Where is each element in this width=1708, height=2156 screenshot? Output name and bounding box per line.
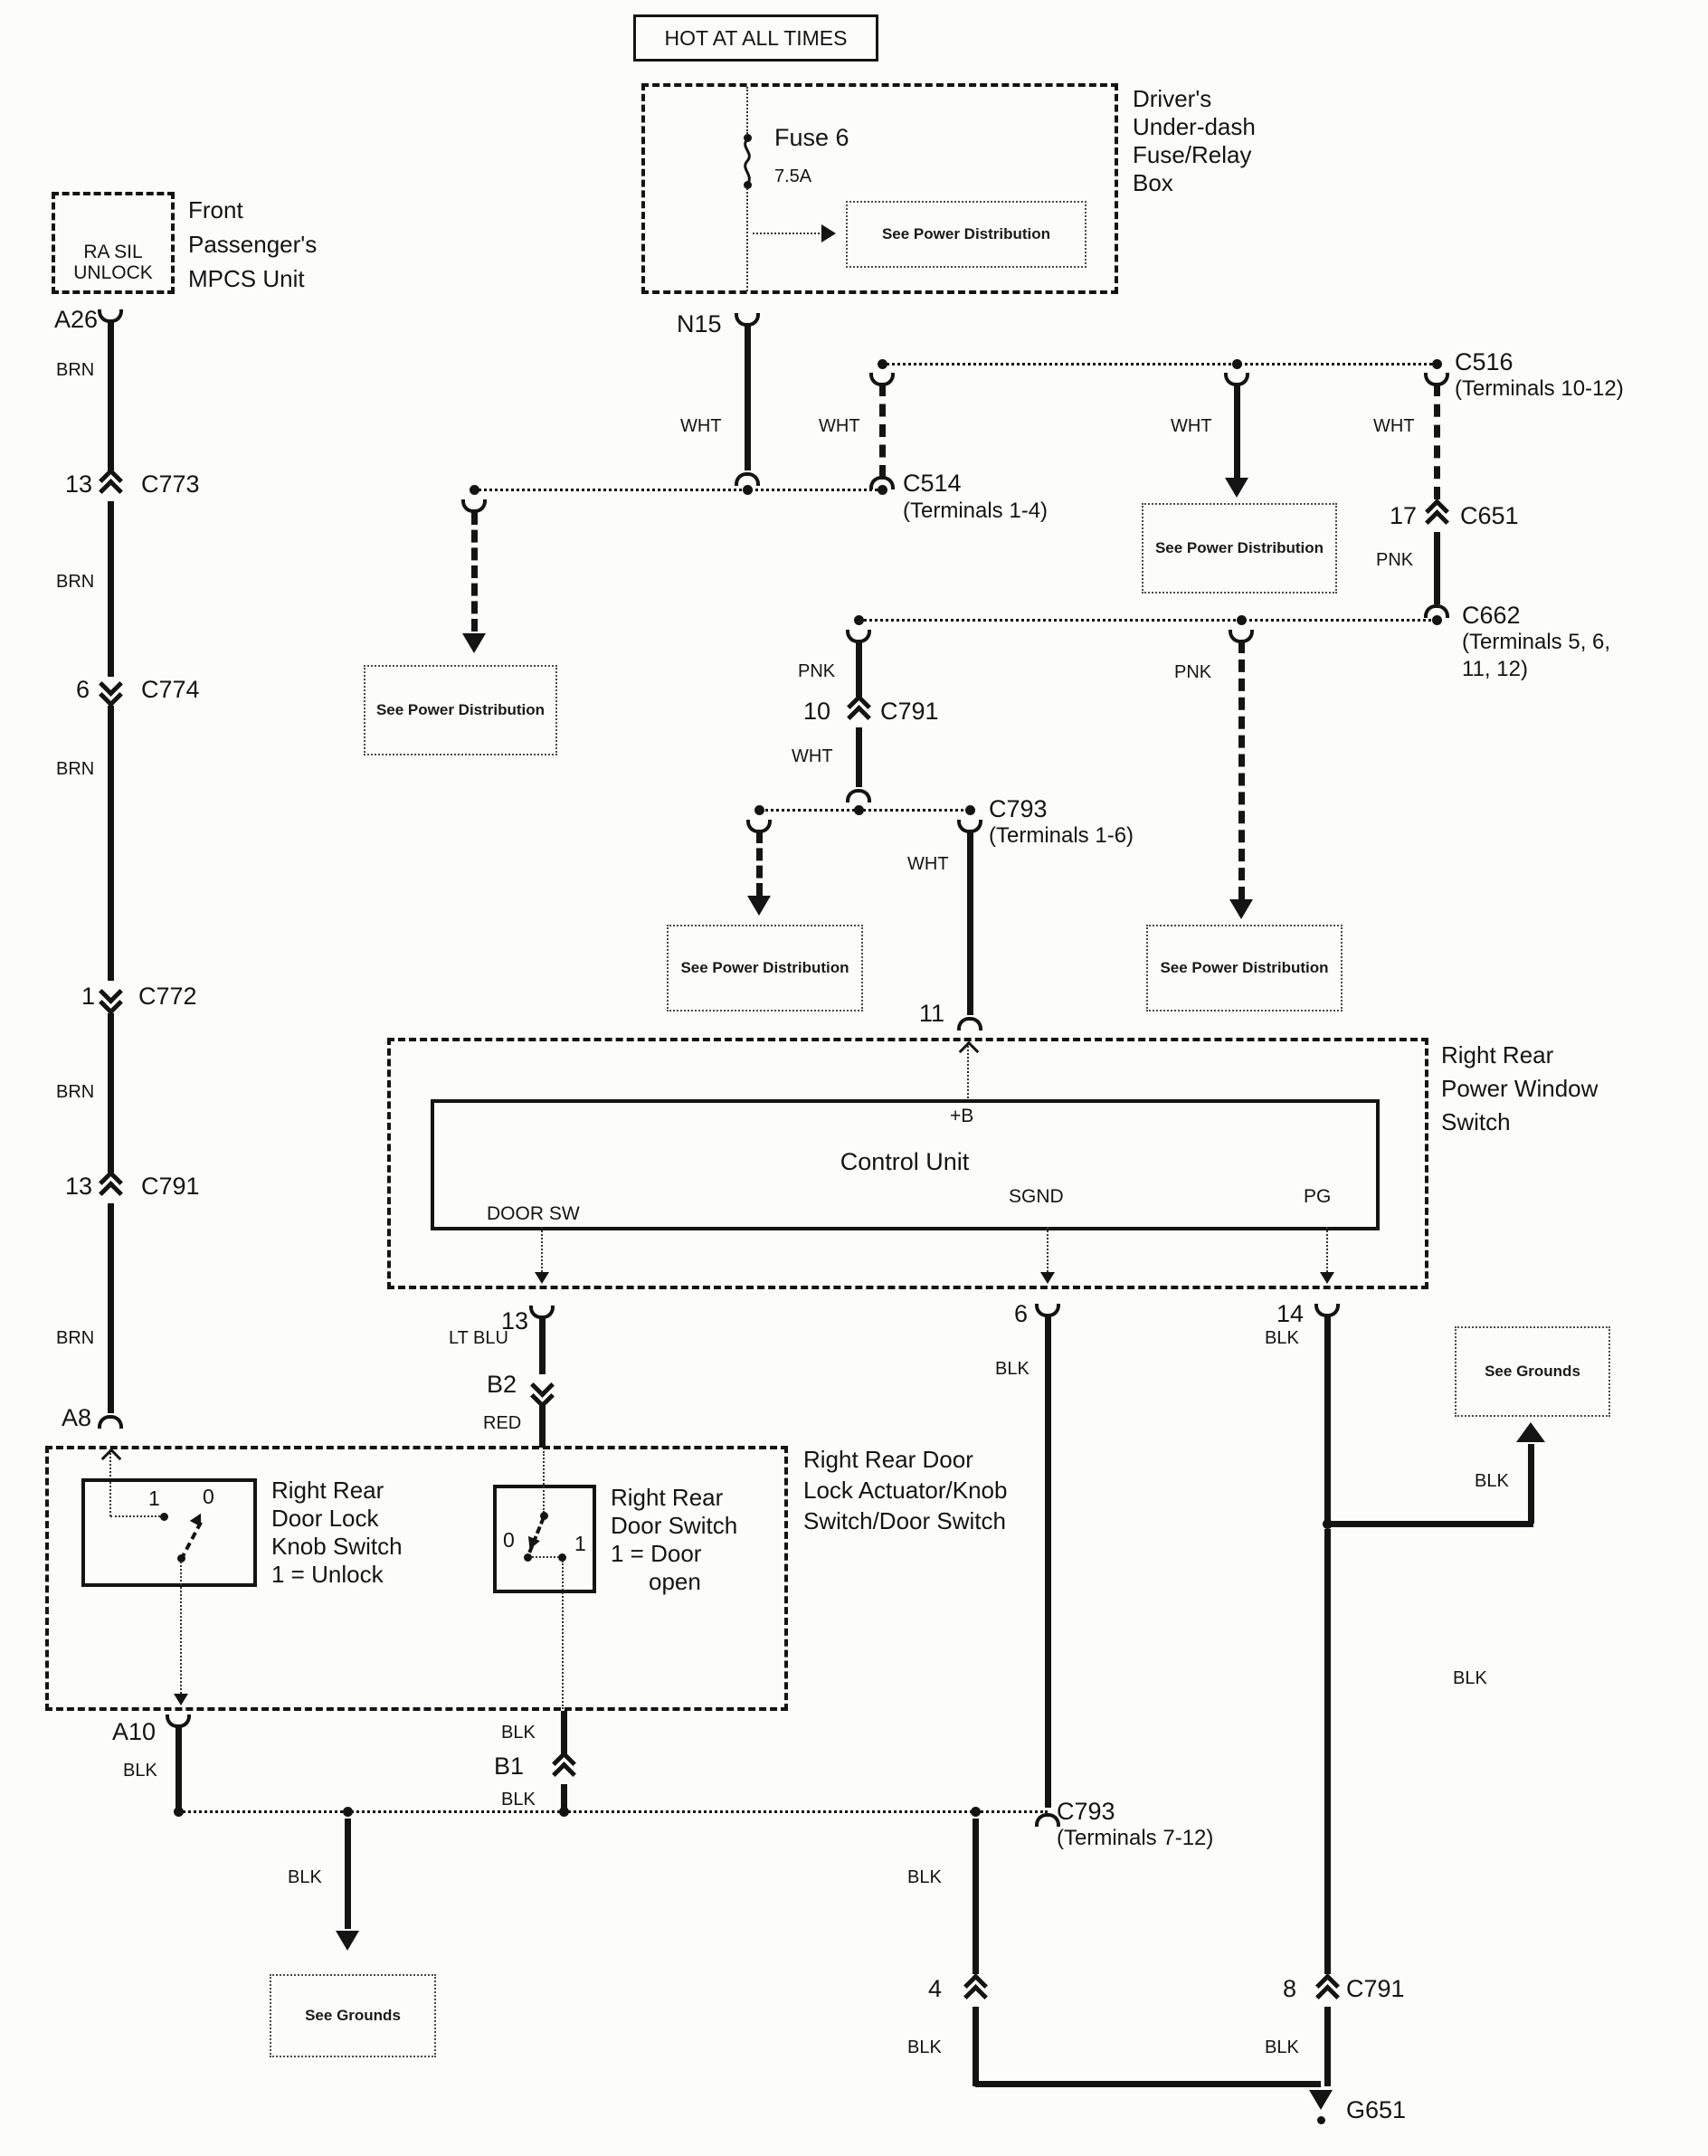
wire-color-pnk-c791: PNK (798, 661, 835, 681)
g651-label: G651 (1346, 2097, 1406, 2123)
knob-label-line4: 1 = Unlock (271, 1561, 403, 1589)
wire-blk-pg-1 (1324, 1315, 1331, 1521)
wire-color-blk-b1-up: BLK (501, 1723, 536, 1743)
knob-switch-box (81, 1478, 257, 1587)
wire-wht-c651 (1434, 384, 1440, 499)
fuse-squiggle-path (745, 139, 750, 185)
wire-color-blk-pin8: BLK (1265, 2037, 1299, 2057)
junction-dot (1232, 359, 1242, 369)
terminal-a26-label: A26 (54, 307, 98, 333)
junction-dot (1432, 615, 1442, 625)
connector-c774-icon (100, 675, 121, 704)
hot-at-all-times-label: HOT AT ALL TIMES (665, 27, 848, 49)
wire-blk-pg-2 (1324, 1529, 1331, 1974)
door-label-line3: 1 = Door (611, 1540, 737, 1568)
connector-c791-mid-icon (848, 697, 869, 726)
connector-fork-icon (98, 1415, 123, 1429)
bus-c793-lower (178, 1810, 1048, 1813)
connector-c772-label: C772 (138, 983, 197, 1010)
bus-c793-upper (759, 809, 970, 812)
wire-wht-pin11 (967, 831, 973, 1015)
terminal-a8-label: A8 (62, 1405, 91, 1431)
wire-brn-1 (108, 320, 114, 470)
wire-pnk-c651 (1434, 532, 1440, 604)
connector-c791-left-pin: 13 (65, 1173, 92, 1200)
mpcs-title-line2: Passenger's (188, 227, 317, 261)
junction-dot (174, 1807, 184, 1817)
sgnd-label: SGND (1009, 1186, 1064, 1207)
see-power-box-3: See Power Distribution (1146, 925, 1343, 1012)
connector-c651-icon (1426, 501, 1447, 530)
wire-color-blk-b1-dn: BLK (501, 1790, 536, 1809)
wire-blk-pin4-1 (973, 1819, 979, 1974)
wire-color-blk-a10: BLK (123, 1761, 157, 1781)
fuse-branch-lead (753, 233, 820, 234)
door-label-line2: Door Switch (611, 1512, 737, 1540)
connector-c773-pin: 13 (65, 471, 92, 498)
arrow-down-icon (1229, 899, 1253, 919)
wire-color-brn-1: BRN (56, 360, 94, 380)
door-switch-label: Right Rear Door Switch 1 = Door open (611, 1484, 737, 1596)
actuator-title-line3: Switch/Door Switch (803, 1505, 1007, 1536)
connector-c772-pin: 1 (81, 983, 95, 1010)
knob-pos-1-label: 1 (148, 1487, 160, 1509)
actuator-title-line2: Lock Actuator/Knob (803, 1475, 1007, 1505)
wire-brn-3 (108, 706, 114, 981)
see-grounds-label-1: See Grounds (1485, 1363, 1580, 1381)
see-power-label-4: See Power Distribution (680, 959, 849, 977)
wire-color-blk-pin4-up: BLK (907, 1867, 942, 1887)
door-actuator-title: Right Rear Door Lock Actuator/Knob Switc… (803, 1444, 1007, 1536)
wire-color-blk-gnd-center: BLK (288, 1867, 322, 1887)
see-power-label-2: See Power Distribution (1155, 539, 1324, 557)
wire-wht-c791 (856, 727, 862, 787)
see-power-box-fuse: See Power Distribution (846, 201, 1086, 268)
exit-lead-door-sw (541, 1227, 543, 1276)
connector-pin4-label: 4 (928, 1976, 942, 2002)
wire-blk-b1-1 (561, 1711, 567, 1755)
see-power-label-fuse: See Power Distribution (882, 225, 1050, 243)
fuse-icon (739, 139, 755, 185)
wire-brn-2 (108, 501, 114, 677)
actuator-title-line1: Right Rear Door (803, 1444, 1007, 1475)
connector-fork-icon (846, 789, 871, 803)
wire-pnk-c791 (856, 641, 862, 697)
arrow-down-icon (1040, 1272, 1055, 1284)
see-grounds-box-1: See Grounds (1455, 1326, 1610, 1417)
see-grounds-box-2: See Grounds (270, 1974, 436, 2057)
connector-c791-left-icon (100, 1173, 121, 1201)
junction-dot (470, 485, 479, 495)
see-power-label-3: See Power Distribution (1160, 959, 1328, 977)
plus-b-label: +B (950, 1106, 973, 1126)
terminal-6-label: 6 (1014, 1301, 1028, 1327)
connector-c793-lower-terminals: (Terminals 7-12) (1057, 1827, 1213, 1850)
control-unit-label: Control Unit (830, 1149, 979, 1175)
power-window-switch-title: Right Rear Power Window Switch (1441, 1039, 1598, 1139)
connector-c774-label: C774 (141, 677, 200, 703)
wire-ltblu (539, 1316, 546, 1374)
door-label-line4: open (611, 1568, 737, 1596)
door-contact-link (532, 1556, 559, 1558)
see-power-box-4: See Power Distribution (667, 925, 863, 1012)
connector-b1-icon (553, 1753, 574, 1782)
pws-title-line1: Right Rear (1441, 1039, 1598, 1072)
wire-color-blk-gnd-branch: BLK (1475, 1471, 1509, 1491)
terminal-a10-label: A10 (112, 1719, 156, 1745)
pg-label: PG (1304, 1186, 1331, 1207)
pws-title-line2: Power Window (1441, 1072, 1598, 1106)
see-power-label-1: See Power Distribution (376, 701, 545, 719)
wire-blk-pin4-2 (973, 2007, 979, 2086)
wire-red (539, 1406, 546, 1448)
wire-color-wht-riser: WHT (819, 416, 860, 436)
wire-brn-5 (108, 1203, 114, 1413)
mpcs-signal-line2: UNLOCK (73, 262, 153, 283)
ground-arrow-icon (336, 1931, 359, 1951)
knob-label-line3: Knob Switch (271, 1533, 403, 1561)
wire-blk-a10 (176, 1725, 182, 1809)
arrow-down-icon (535, 1272, 549, 1284)
door-contact-0-dot (524, 1553, 532, 1562)
fuse-lead-top (746, 87, 748, 134)
fuse-name-label: Fuse 6 (774, 125, 849, 151)
wire-wht-riser (879, 384, 886, 478)
door-entry-lead (543, 1451, 545, 1513)
junction-dot (878, 359, 887, 369)
mpcs-title-line1: Front (188, 193, 317, 227)
door-pos-1-label: 1 (574, 1533, 586, 1554)
junction-dot (965, 805, 975, 815)
wiring-diagram-page: HOT AT ALL TIMES Driver's Under-dash Fus… (0, 0, 1708, 2156)
terminal-n15-label: N15 (677, 311, 722, 337)
door-exit-lead (562, 1561, 564, 1709)
door-pos-0-label: 0 (503, 1529, 515, 1551)
junction-dot (343, 1807, 353, 1817)
terminal-11-label: 11 (919, 1001, 944, 1027)
knob-exit-lead (180, 1562, 182, 1694)
connector-c516-terminals: (Terminals 10-12) (1455, 377, 1624, 401)
junction-dot (854, 615, 864, 625)
bus-c516 (882, 363, 1437, 366)
see-power-box-2: See Power Distribution (1142, 503, 1337, 594)
mpcs-unit-box: RA SIL UNLOCK (52, 192, 175, 294)
wire-color-wht-c791: WHT (792, 746, 833, 766)
wire-color-wht-drop: WHT (1171, 416, 1212, 436)
fuse-relay-box-title: Driver's Under-dash Fuse/Relay Box (1133, 85, 1256, 197)
g651-ground-icon (1309, 2090, 1333, 2110)
connector-c791-right-pin: 8 (1283, 1976, 1296, 2002)
wire-color-wht-n15: WHT (680, 416, 722, 436)
pws-title-line3: Switch (1441, 1106, 1598, 1139)
exit-lead-pg (1326, 1227, 1328, 1276)
knob-label-line1: Right Rear (271, 1477, 403, 1505)
junction-dot (854, 805, 864, 815)
fuse-rating-label: 7.5A (774, 166, 811, 186)
wire-color-brn-3: BRN (56, 759, 94, 779)
connector-c793-upper-label: C793 (989, 796, 1048, 822)
arrow-down-icon (747, 896, 771, 916)
fuse-relay-box-title-line1: Driver's (1133, 85, 1256, 113)
wire-blk-gnd-center (345, 1819, 351, 1929)
knob-switch-label: Right Rear Door Lock Knob Switch 1 = Unl… (271, 1477, 403, 1589)
terminal-14-label: 14 (1276, 1301, 1304, 1327)
mpcs-signal-line1: RA SIL (73, 242, 153, 262)
wire-color-red: RED (483, 1413, 521, 1433)
junction-dot (559, 1807, 569, 1817)
wire-dashed-branch (471, 512, 478, 632)
wire-color-brn-2: BRN (56, 572, 94, 592)
wire-brn-4 (108, 1013, 114, 1173)
exit-lead-sgnd (1047, 1227, 1049, 1276)
ground-arrow-icon (1516, 1422, 1545, 1442)
connector-c662-label: C662 (1462, 603, 1521, 629)
connector-c791-right-icon (1316, 1976, 1338, 2005)
arrow-down-icon (1320, 1272, 1334, 1284)
arrow-down-icon (462, 633, 486, 653)
wire-blk-pin8 (1324, 2007, 1331, 2086)
wire-blk-ground-riser (1528, 1444, 1534, 1524)
connector-fork-icon (869, 476, 895, 489)
connector-b2-label: B2 (487, 1372, 517, 1398)
connector-c793-lower-label: C793 (1057, 1799, 1115, 1825)
mpcs-title-line3: MPCS Unit (188, 261, 317, 296)
wire-color-blk-sgnd: BLK (995, 1359, 1030, 1379)
fuse-lead-bottom (746, 188, 748, 291)
connector-c514-label: C514 (903, 470, 962, 497)
connector-c662-terminals-2: 11, 12) (1462, 658, 1528, 681)
see-power-box-1: See Power Distribution (364, 665, 557, 755)
knob-label-line2: Door Lock (271, 1505, 403, 1533)
connector-fork-icon (461, 499, 487, 513)
connector-c773-icon (100, 470, 121, 499)
wire-color-pnk-drop: PNK (1174, 662, 1211, 682)
wire-wht-n15 (745, 324, 751, 470)
connector-b1-label: B1 (494, 1753, 524, 1780)
wire-blk-ground-branch (1327, 1521, 1533, 1527)
connector-c774-pin: 6 (76, 677, 90, 703)
connector-pin4-icon (964, 1976, 986, 2005)
mpcs-title: Front Passenger's MPCS Unit (188, 193, 317, 296)
wire-blk-sgnd (1045, 1315, 1051, 1808)
connector-c662-terminals-1: (Terminals 5, 6, (1462, 631, 1610, 654)
connector-c791-mid-pin: 10 (803, 698, 830, 725)
knob-contact-lead (110, 1515, 160, 1517)
arrow-right-icon (821, 224, 836, 242)
arrow-down-icon (174, 1694, 188, 1705)
connector-fork-icon (735, 472, 760, 486)
wire-color-ltblu: LT BLU (449, 1328, 508, 1348)
wire-blk-ground-run (975, 2081, 1321, 2087)
junction-dot (971, 1807, 981, 1817)
wire-color-blk-pg-long: BLK (1453, 1668, 1487, 1688)
connector-c651-pin: 17 (1390, 503, 1417, 529)
bus-c662 (859, 619, 1437, 622)
fuse-relay-box-title-line4: Box (1133, 169, 1256, 197)
connector-c791-left-label: C791 (141, 1173, 200, 1200)
connector-c514-terminals: (Terminals 1-4) (903, 499, 1048, 523)
wire-color-blk-pg: BLK (1265, 1328, 1299, 1348)
knob-contact-dot (160, 1513, 168, 1521)
connector-c651-label: C651 (1460, 503, 1519, 529)
bus-c514 (474, 489, 882, 491)
knob-pos-0-label: 0 (203, 1486, 214, 1507)
wire-color-blk-pin4-dn: BLK (907, 2037, 942, 2057)
junction-dot (1432, 359, 1442, 369)
junction-dot (754, 805, 764, 815)
wire-wht-drop (1234, 384, 1240, 480)
wire-color-wht-c651: WHT (1373, 416, 1415, 436)
door-sw-label: DOOR SW (487, 1203, 580, 1224)
wire-color-pnk-c651: PNK (1376, 550, 1413, 570)
connector-c773-label: C773 (141, 471, 200, 498)
connector-fork-icon (957, 1017, 982, 1031)
junction-dot (1237, 615, 1247, 625)
mpcs-signal: RA SIL UNLOCK (73, 242, 153, 290)
fuse-relay-box-title-line3: Fuse/Relay (1133, 141, 1256, 169)
connector-c772-icon (100, 983, 121, 1012)
connector-c516-label: C516 (1455, 349, 1513, 375)
door-label-line1: Right Rear (611, 1484, 737, 1512)
wire-color-brn-4: BRN (56, 1082, 94, 1102)
connector-b2-icon (531, 1376, 553, 1405)
connector-c793-upper-terminals: (Terminals 1-6) (989, 824, 1134, 848)
see-grounds-label-2: See Grounds (305, 2007, 401, 2025)
g651-ground-dot (1317, 2116, 1325, 2124)
wire-color-brn-5: BRN (56, 1328, 94, 1348)
connector-c791-mid-label: C791 (880, 698, 939, 725)
hot-at-all-times-box: HOT AT ALL TIMES (633, 14, 878, 62)
connector-c791-right-label: C791 (1346, 1976, 1405, 2002)
fuse-relay-box-title-line2: Under-dash (1133, 113, 1256, 141)
wire-color-wht-pin11: WHT (907, 854, 949, 874)
junction-dot (743, 485, 753, 495)
wire-dashed-branch-2 (756, 831, 763, 896)
wire-blk-b1-2 (561, 1784, 567, 1809)
arrow-down-icon (1225, 478, 1248, 498)
wire-pnk-drop (1238, 641, 1245, 899)
